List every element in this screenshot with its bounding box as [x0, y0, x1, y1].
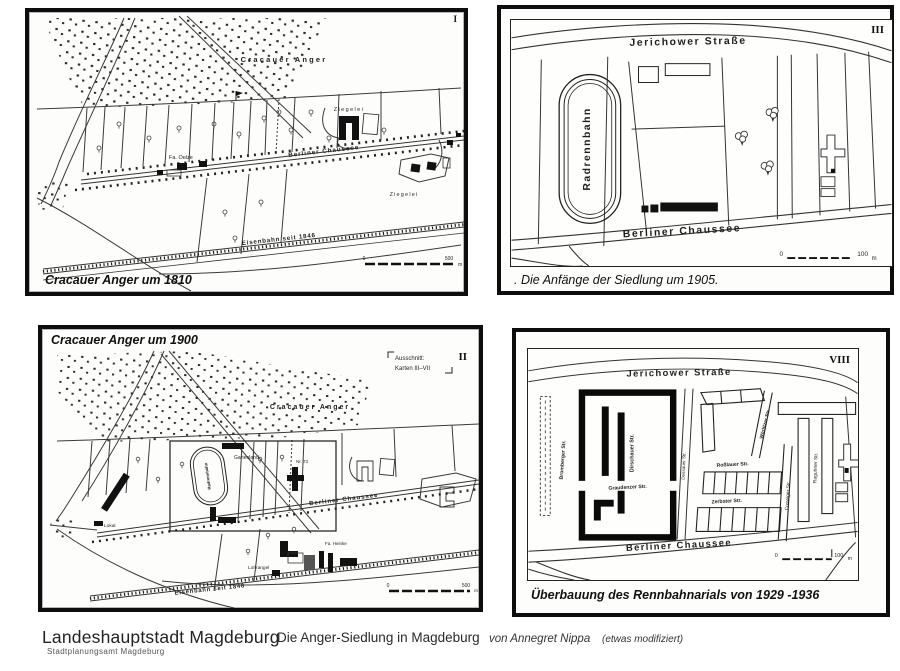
label-lohrangel: Lohrangel — [248, 565, 269, 571]
footer-organisation: Landeshauptstadt Magdeburg — [42, 627, 280, 648]
label-zerbster: Zerbster Str. — [711, 498, 742, 506]
sheet-numeral-3: III — [871, 24, 884, 36]
legend-karten: Karten III–VII — [395, 366, 430, 372]
scale-unit: m — [474, 589, 478, 594]
scale-zero: 0 — [363, 256, 366, 262]
scale-bar: 0 500 m — [387, 583, 478, 594]
scale-unit: m — [848, 556, 852, 562]
berliner-chaussee-road — [75, 131, 464, 190]
map-1905-drawing: Radrennbahn — [511, 20, 892, 266]
map-panel-1905: Radrennbahn — [497, 5, 894, 295]
footer-department: Stadtplanungsamt Magdeburg — [47, 647, 165, 656]
map-1900-drawing: Radrennbahn — [42, 329, 479, 608]
map-1905-area: Radrennbahn — [510, 19, 893, 267]
map-1929-area: Jerichower Straße Bromberger Str. Dirsch… — [527, 348, 859, 581]
scale-bar: 0 500 m — [363, 256, 463, 268]
map-1929-drawing: Jerichower Straße Bromberger Str. Dirsch… — [528, 349, 858, 580]
trees-1905 — [735, 107, 778, 175]
label-chaussee: Berliner Chaussee — [309, 493, 379, 507]
map-panel-1929: Jerichower Straße Bromberger Str. Dirsch… — [512, 328, 890, 617]
scale-zero: 0 — [387, 583, 390, 589]
scale-unit: m — [872, 256, 877, 262]
footer-note: (etwas modifiziert) — [602, 634, 683, 645]
sheet-numeral-2: II — [458, 351, 467, 363]
caption-1905: . Die Anfänge der Siedlung um 1905. — [514, 273, 719, 287]
label-nr73: Nr. 73 — [296, 459, 309, 464]
scale-end: 100 — [857, 251, 868, 258]
caption-1929: Überbauung des Rennbahnarials von 1929 -… — [531, 588, 819, 602]
label-fa-oelze: Fa. Oelze — [169, 155, 193, 161]
garden-strip — [540, 397, 550, 516]
scale-bar: 0 100 m — [780, 251, 877, 262]
label-dirschauer: Dirschauer Str. — [630, 434, 636, 473]
railway — [43, 222, 464, 280]
right-edge — [836, 397, 858, 538]
label-radrennbahn: Radrennbahn — [582, 107, 593, 190]
perimeter-block — [576, 393, 679, 538]
label-fa-heinke: Fa. Heinke — [325, 541, 347, 546]
scale-zero: 0 — [780, 251, 784, 258]
map-1810-drawing: Cracauer Anger Ziegelei Fa. Oelze Berlin… — [29, 12, 464, 292]
label-eisenbahn: Eisenbahn seit 1846 — [174, 583, 245, 596]
scanned-map-sheet: Cracauer Anger Ziegelei Fa. Oelze Berlin… — [0, 0, 900, 671]
legend-box: Ausschnitt: Karten III–VII — [388, 352, 452, 373]
field-trees — [136, 455, 296, 555]
scale-end: 500 — [462, 583, 471, 589]
railway — [90, 550, 479, 601]
label-ziegelei-top: Ziegelei — [334, 107, 364, 113]
label-rosslauer: Roßlauer Str. — [716, 461, 749, 469]
scale-end: 100 — [834, 553, 843, 559]
label-bromberger: Bromberger Str. — [559, 440, 568, 480]
map-panel-1900: Radrennbahn — [38, 325, 483, 612]
label-woerlitzer: Wörlitzer Str. — [759, 408, 772, 440]
label-cracauer-anger: Cracauer Anger — [270, 404, 350, 411]
label-jerichower: Jerichower Straße — [626, 366, 731, 379]
scale-end: 500 — [445, 256, 454, 262]
footer-sheet-title: Die Anger-Siedlung in Magdeburg — [277, 630, 480, 645]
legend-ausschnitt: Ausschnitt: — [395, 356, 425, 362]
label-radrennbahn-small: Radrennbahn — [203, 462, 212, 490]
label-chaussee: Berliner Chaussee — [623, 223, 742, 240]
sheet-footer: Landeshauptstadt Magdeburg Stadtplanungs… — [0, 622, 900, 671]
building-nr73 — [287, 467, 304, 491]
label-gartenland: Gartenland — [234, 455, 259, 461]
label-dessauer: Dessauer Str. — [681, 452, 687, 480]
scale-zero: 0 — [775, 553, 778, 559]
label-lokal: Lokal — [104, 523, 115, 529]
scale-unit: m — [458, 262, 462, 268]
map-panel-1810: Cracauer Anger Ziegelei Fa. Oelze Berlin… — [25, 8, 468, 296]
berliner-chaussee-road — [528, 522, 857, 580]
label-ziegelei-bottom: Ziegelei — [390, 192, 419, 198]
footer-author: von Annegret Nippa — [489, 633, 590, 645]
label-cracauer-anger: Cracauer Anger — [241, 55, 328, 64]
label-coswiger: Coswiger Str. — [784, 481, 792, 511]
label-raguhner: Raguhner Str. — [812, 453, 819, 484]
title-1900: Cracauer Anger um 1900 — [51, 333, 198, 347]
sheet-numeral-1: I — [453, 14, 457, 24]
label-jerichower: Jerichower Straße — [629, 36, 746, 49]
sheet-numeral-8: VIII — [829, 354, 850, 366]
caption-1810: Cracauer Anger um 1810 — [45, 273, 192, 287]
